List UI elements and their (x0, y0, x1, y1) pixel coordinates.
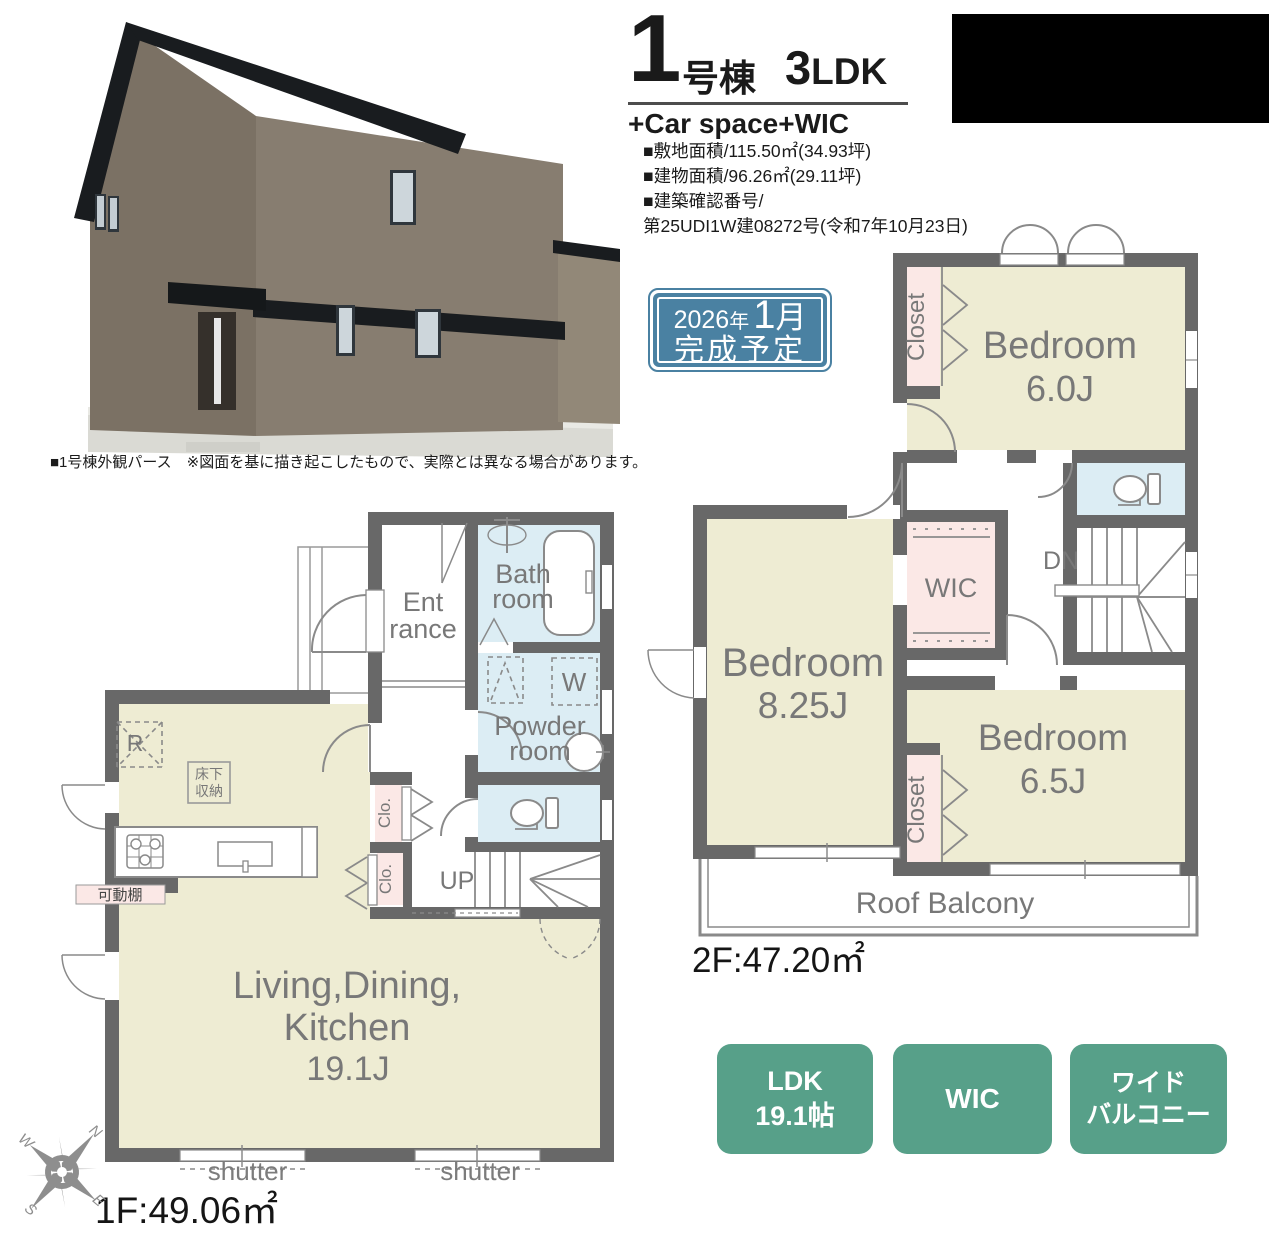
feature-badge-balcony-line2: バルコニー (1086, 1099, 1211, 1132)
bedroom2-window-arc (648, 650, 694, 698)
floor-plan-1f: Ent rance Bath room Powder room W R 床下 収… (60, 495, 640, 1195)
plan-room-count: 3 (785, 40, 811, 95)
ldk-window-arc-1 (62, 785, 105, 829)
bedroom2-size: 8.25J (758, 685, 849, 726)
kitchen-counter (115, 827, 317, 877)
entrance-porch (298, 547, 370, 693)
feature-badge-wic: WIC (893, 1044, 1052, 1154)
clo2-label: Clo. (376, 864, 395, 894)
house-exterior-render (68, 12, 623, 457)
unit-number-suffix: 号棟 (682, 48, 756, 102)
ldk-label-2: Kitchen (284, 1007, 411, 1049)
floor-storage-label-2: 収納 (195, 783, 223, 799)
title-underline (628, 102, 908, 105)
spec-building-area: ■建物面積/96.26㎡(29.11坪) (643, 164, 968, 189)
plan-type: 3LDK (785, 40, 887, 95)
bedroom1-label: Bedroom (983, 325, 1137, 367)
house-right-wall (256, 116, 563, 436)
compass-icon: N W S E (14, 1110, 119, 1225)
bedroom3-size: 6.5J (1020, 762, 1086, 801)
feature-badge-balcony: ワイド バルコニー (1070, 1044, 1227, 1154)
bedroom3-door-arc (1007, 615, 1057, 665)
closet1-label: Closet (903, 293, 930, 361)
balcony-door-arc-1 (1002, 225, 1058, 253)
wic-label: WIC (925, 573, 977, 603)
balcony-door-arc-2 (1068, 225, 1124, 253)
feature-badge-ldk: LDK 19.1帖 (717, 1044, 873, 1154)
feature-badge-ldk-line2: 19.1帖 (755, 1099, 835, 1134)
plan-ldk: LDK (811, 51, 887, 93)
bedroom1-size: 6.0J (1026, 368, 1094, 409)
compass-s: S (21, 1200, 40, 1219)
spec-site-area: ■敷地面積/115.50㎡(34.93坪) (643, 139, 968, 164)
clo1-label: Clo. (375, 798, 394, 828)
feature-badge-wic-line1: WIC (945, 1081, 999, 1117)
toilet-1f-icon (511, 798, 558, 829)
bedroom2-label: Bedroom (722, 641, 884, 685)
compass-e: E (89, 1191, 108, 1211)
roof-balcony-label: Roof Balcony (856, 887, 1034, 920)
toilet-2f-icon (1114, 474, 1160, 505)
floor2-area-label: 2F:47.20㎡ (692, 932, 865, 983)
floor1-area-label: 1F:49.06㎡ (95, 1180, 278, 1234)
plan-features: +Car space+WIC (628, 108, 849, 140)
feature-badge-ldk-line1: LDK (767, 1064, 823, 1099)
house-annex-wall (558, 252, 620, 424)
entrance-label-2: rance (389, 614, 457, 644)
redacted-block (952, 14, 1269, 123)
washer-label: W (562, 667, 587, 697)
bath-label-2: room (492, 584, 554, 614)
feature-badge-balcony-line1: ワイド (1111, 1067, 1186, 1100)
exterior-caption: ■1号棟外観パース ※図面を基に描き起こしたもので、実際とは異なる場合があります… (50, 451, 690, 472)
closet2-label: Closet (903, 776, 930, 844)
fridge-label: R (127, 730, 144, 756)
ldk-window-arc-2 (62, 955, 105, 999)
floor-plan-2f: Bedroom 6.0J Bedroom 8.25J Bedroom 6.5J … (640, 205, 1240, 950)
stairs-handrail (1055, 585, 1139, 596)
entrance-door-panel (366, 590, 384, 652)
shutter-label-2: shutter (400, 1156, 560, 1187)
up-label: UP (440, 867, 475, 895)
dn-label: DN (1043, 547, 1079, 575)
ldk-label-1: Living,Dining, (233, 965, 461, 1007)
ldk-size-label: 19.1J (306, 1050, 389, 1088)
real-estate-flyer: ■1号棟外観パース ※図面を基に描き起こしたもので、実際とは異なる場合があります… (0, 0, 1280, 1246)
powder-label-2: room (509, 736, 571, 766)
shelf-label: 可動棚 (97, 887, 142, 904)
entrance-label-1: Ent (403, 587, 444, 617)
floor-storage-label-1: 床下 (195, 766, 223, 782)
unit-number: 1 (628, 0, 679, 104)
bedroom3-label: Bedroom (978, 717, 1128, 758)
